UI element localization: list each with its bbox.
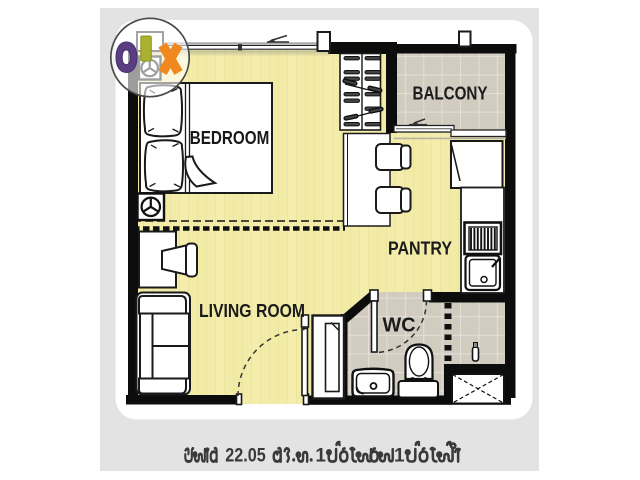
svg-text:WC: WC	[383, 315, 416, 337]
svg-text:LIVING ROOM: LIVING ROOM	[199, 300, 305, 321]
svg-text:22.05: 22.05	[225, 446, 266, 467]
svg-text:1: 1	[315, 446, 326, 467]
svg-text:PANTRY: PANTRY	[388, 238, 453, 259]
svg-text:BEDROOM: BEDROOM	[190, 128, 270, 148]
svg-text:BALCONY: BALCONY	[413, 84, 488, 104]
svg-text:1: 1	[394, 446, 405, 467]
